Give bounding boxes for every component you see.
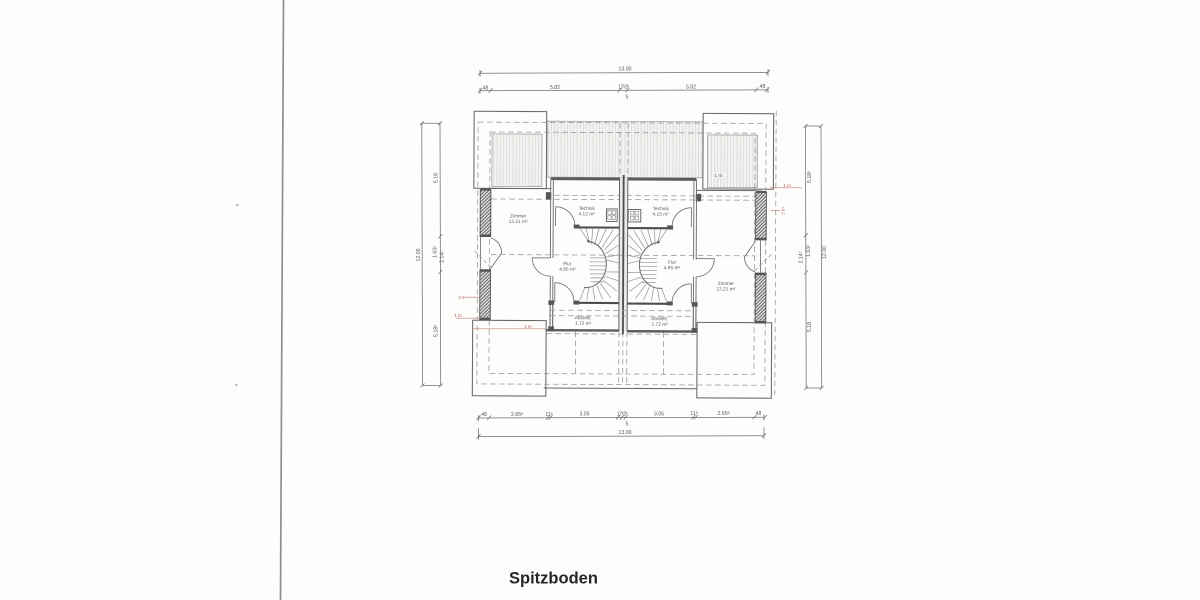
svg-text:13.00: 13.00 — [619, 67, 632, 73]
svg-text:5.82: 5.82 — [686, 85, 696, 91]
svg-text:13.21 m²: 13.21 m² — [509, 219, 528, 225]
svg-text:4.12 m²: 4.12 m² — [579, 211, 596, 217]
svg-text:12.00: 12.00 — [416, 248, 422, 261]
svg-text:13.00: 13.00 — [619, 430, 632, 436]
svg-text:3.05: 3.05 — [579, 412, 589, 418]
svg-text:Flur: Flur — [563, 261, 572, 267]
svg-text:13.21 m²: 13.21 m² — [716, 286, 735, 292]
svg-text:48: 48 — [481, 412, 487, 418]
svg-text:Abstellr.: Abstellr. — [651, 316, 668, 322]
svg-text:5.82: 5.82 — [550, 85, 560, 91]
svg-text:Spitzboden: Spitzboden — [509, 570, 598, 588]
svg-text:Technik: Technik — [579, 206, 596, 212]
svg-text:12.00: 12.00 — [822, 246, 828, 259]
svg-text:4.95 m²: 4.95 m² — [559, 267, 576, 273]
svg-text:1.72 m²: 1.72 m² — [575, 321, 592, 327]
svg-text:1 m: 1 m — [783, 183, 791, 188]
svg-text:5: 5 — [626, 95, 629, 101]
svg-text:5.18: 5.18 — [433, 173, 439, 183]
svg-text:3.05: 3.05 — [654, 411, 664, 417]
svg-text:1.72 m²: 1.72 m² — [652, 322, 669, 328]
svg-text:Zimmer: Zimmer — [510, 213, 527, 219]
svg-text:Technik: Technik — [653, 206, 670, 212]
svg-text:48: 48 — [756, 411, 762, 417]
svg-text:48: 48 — [760, 84, 766, 90]
svg-text:1 m: 1 m — [714, 173, 722, 179]
svg-text:1 m: 1 m — [524, 324, 532, 329]
svg-text:48: 48 — [483, 85, 489, 91]
svg-text:Flur: Flur — [668, 260, 677, 266]
svg-text:5: 5 — [626, 422, 629, 428]
svg-text:2 m: 2 m — [458, 295, 466, 300]
svg-text:2 m: 2 m — [781, 207, 786, 215]
svg-text:Abstellr.: Abstellr. — [575, 315, 592, 321]
svg-text:4.95 m²: 4.95 m² — [664, 265, 681, 271]
svg-text:1 m: 1 m — [454, 313, 462, 318]
svg-text:4.15 m²: 4.15 m² — [653, 212, 670, 218]
svg-text:5.18: 5.18 — [807, 322, 813, 332]
svg-text:Zimmer: Zimmer — [718, 281, 735, 287]
